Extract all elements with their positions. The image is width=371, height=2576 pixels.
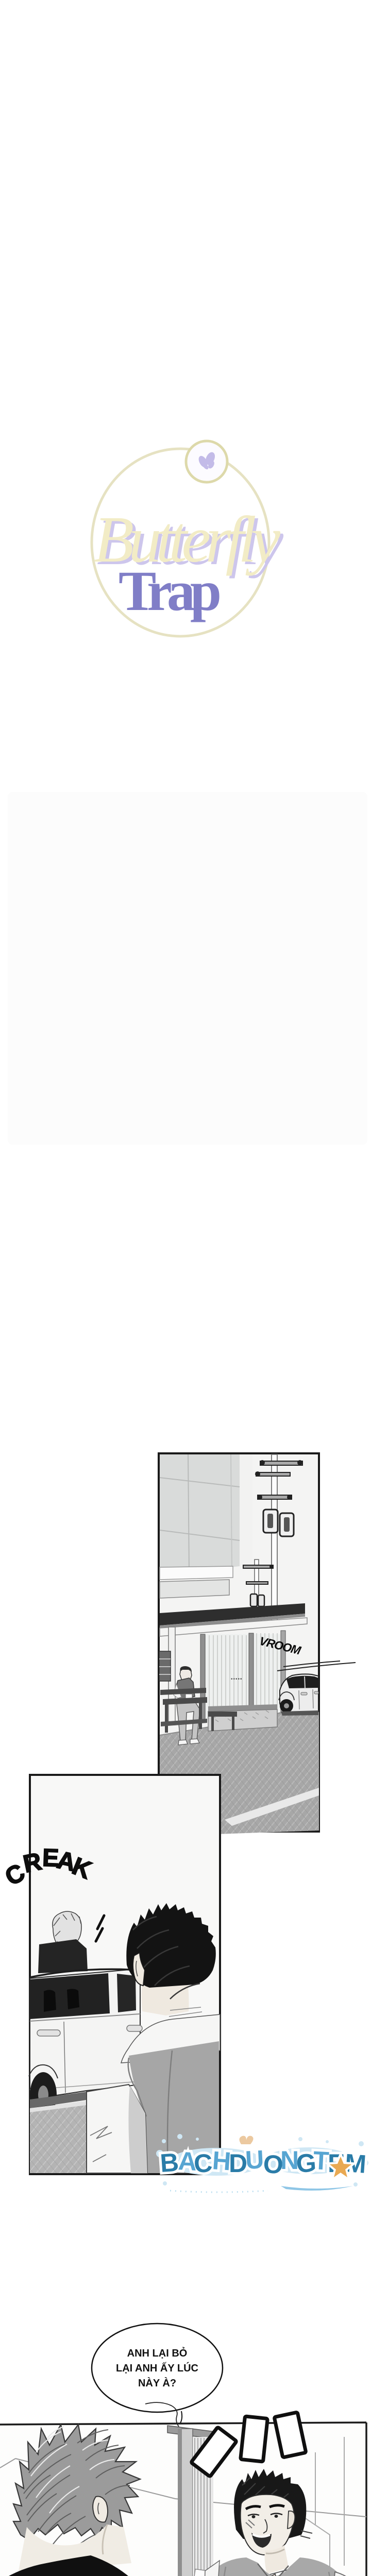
svg-text:NÀY À?: NÀY À? [138, 2377, 176, 2389]
svg-text:Trap: Trap [119, 560, 222, 622]
svg-text:•••••: ••••• [231, 1676, 243, 1682]
svg-text:C: C [193, 2148, 213, 2178]
svg-text:B: B [159, 2148, 180, 2178]
svg-text:ANH LẠI BỎ: ANH LẠI BỎ [127, 2347, 188, 2359]
svg-text:U: U [245, 2145, 265, 2175]
svg-text:LẠI ANH ẤY LÚC: LẠI ANH ẤY LÚC [116, 2362, 198, 2374]
svg-text:T: T [312, 2146, 329, 2176]
